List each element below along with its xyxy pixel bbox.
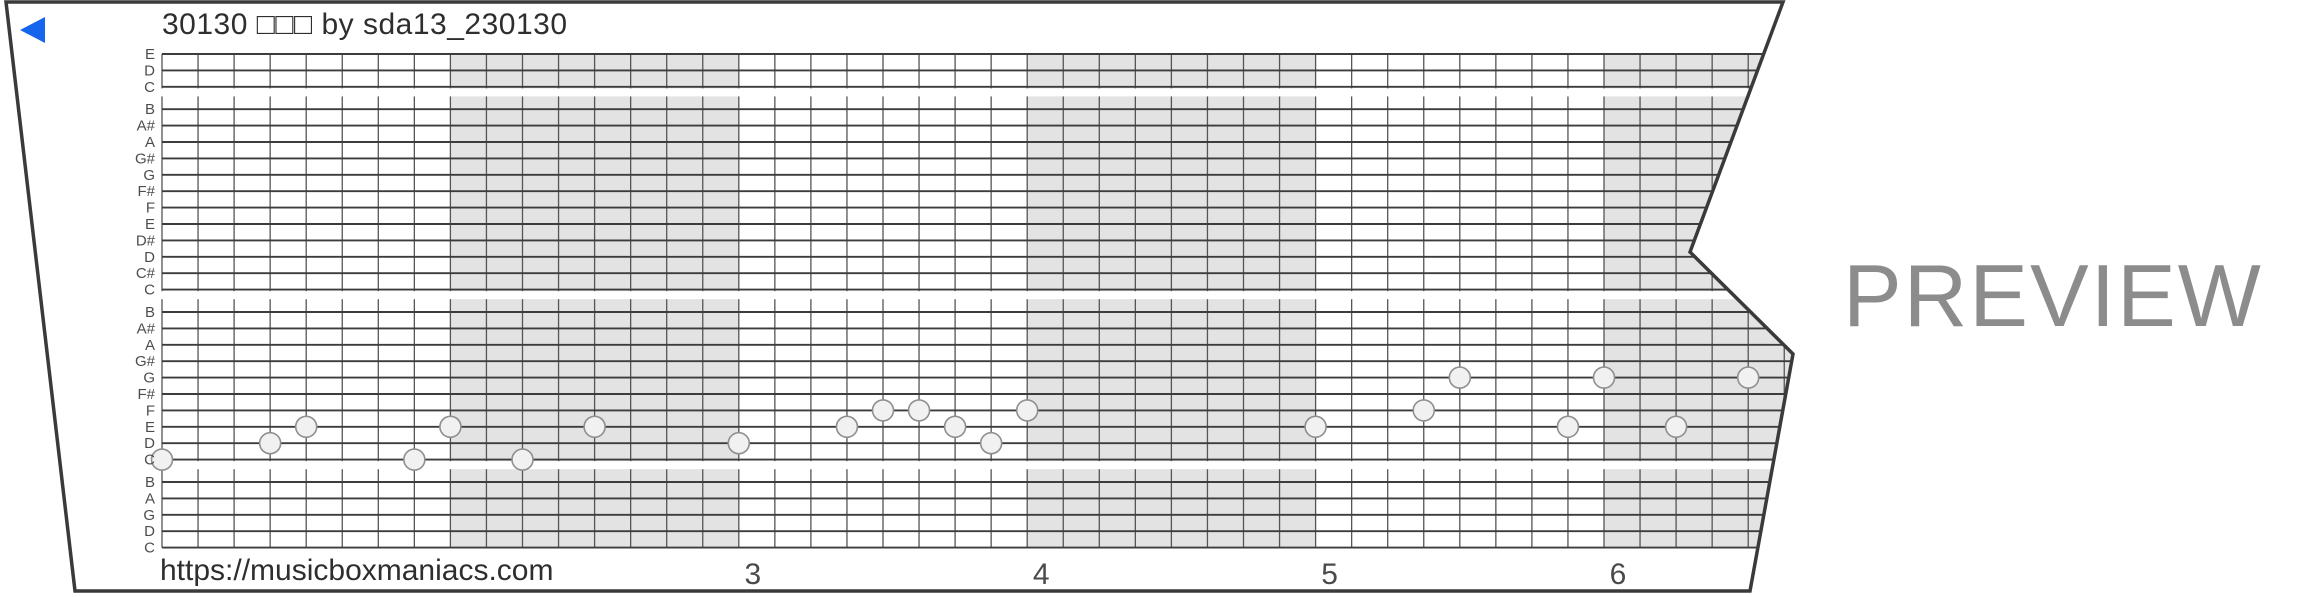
pitch-label: B — [145, 101, 155, 118]
pitch-label: G — [143, 167, 155, 184]
pitch-label: E — [145, 216, 155, 233]
pitch-label: G# — [135, 353, 156, 370]
measure-number: 6 — [1610, 558, 1627, 591]
note-dot-G4 — [1449, 367, 1470, 388]
note-dot-E4 — [584, 416, 605, 437]
note-dot-E4 — [1557, 416, 1578, 437]
pitch-label: G — [143, 370, 155, 387]
pitch-label: C — [144, 79, 155, 96]
pitch-label: D — [144, 523, 155, 540]
measure-number: 4 — [1033, 558, 1050, 591]
pitch-label: B — [145, 304, 155, 321]
note-dot-D4 — [260, 433, 281, 454]
pitch-label: D — [144, 249, 155, 266]
pitch-label: G# — [135, 150, 156, 167]
pitch-label: G — [143, 507, 155, 524]
pitch-label: D — [144, 62, 155, 79]
pitch-label: D# — [136, 232, 156, 249]
measure-number: 5 — [1321, 558, 1338, 591]
octave-gap — [160, 88, 1870, 96]
note-dot-F4 — [1413, 400, 1434, 421]
note-dot-E4 — [440, 416, 461, 437]
site-url: https://musicboxmaniacs.com — [160, 554, 553, 587]
pitch-label: F — [146, 402, 155, 419]
note-dot-C4 — [512, 449, 533, 470]
note-dot-E4 — [836, 416, 857, 437]
pitch-label: A — [145, 134, 155, 151]
pitch-label: C# — [136, 265, 156, 282]
pitch-label: C — [144, 452, 155, 469]
note-dot-E4 — [296, 416, 317, 437]
pitch-label: F# — [137, 183, 155, 200]
note-dot-F4 — [873, 400, 894, 421]
note-dot-F4 — [909, 400, 930, 421]
note-dot-D4 — [728, 433, 749, 454]
pitch-label: E — [145, 419, 155, 436]
note-dot-G4 — [1738, 367, 1759, 388]
pitch-label: A — [145, 337, 155, 354]
note-dot-D4 — [981, 433, 1002, 454]
pitch-label: C — [144, 282, 155, 299]
measure-number: 3 — [744, 558, 761, 591]
pitch-label: A# — [137, 320, 156, 337]
pitch-label: F — [146, 200, 155, 217]
strip-title: 30130 □□□ by sda13_230130 — [162, 8, 568, 41]
pitch-label: E — [145, 46, 155, 63]
pitch-label: C — [144, 540, 155, 557]
preview-watermark: PREVIEW — [1843, 252, 2263, 340]
pitch-label: A# — [137, 118, 156, 135]
pitch-label: B — [145, 474, 155, 491]
note-dot-E4 — [945, 416, 966, 437]
note-dot-E4 — [1666, 416, 1687, 437]
note-dot-C4 — [404, 449, 425, 470]
pitch-label: A — [145, 490, 155, 507]
pitch-label: D — [144, 435, 155, 452]
note-dot-F4 — [1017, 400, 1038, 421]
note-dot-E4 — [1305, 416, 1326, 437]
pitch-label: F# — [137, 386, 155, 403]
octave-gap — [160, 291, 1870, 299]
back-icon[interactable] — [20, 17, 45, 43]
note-dot-G4 — [1594, 367, 1615, 388]
